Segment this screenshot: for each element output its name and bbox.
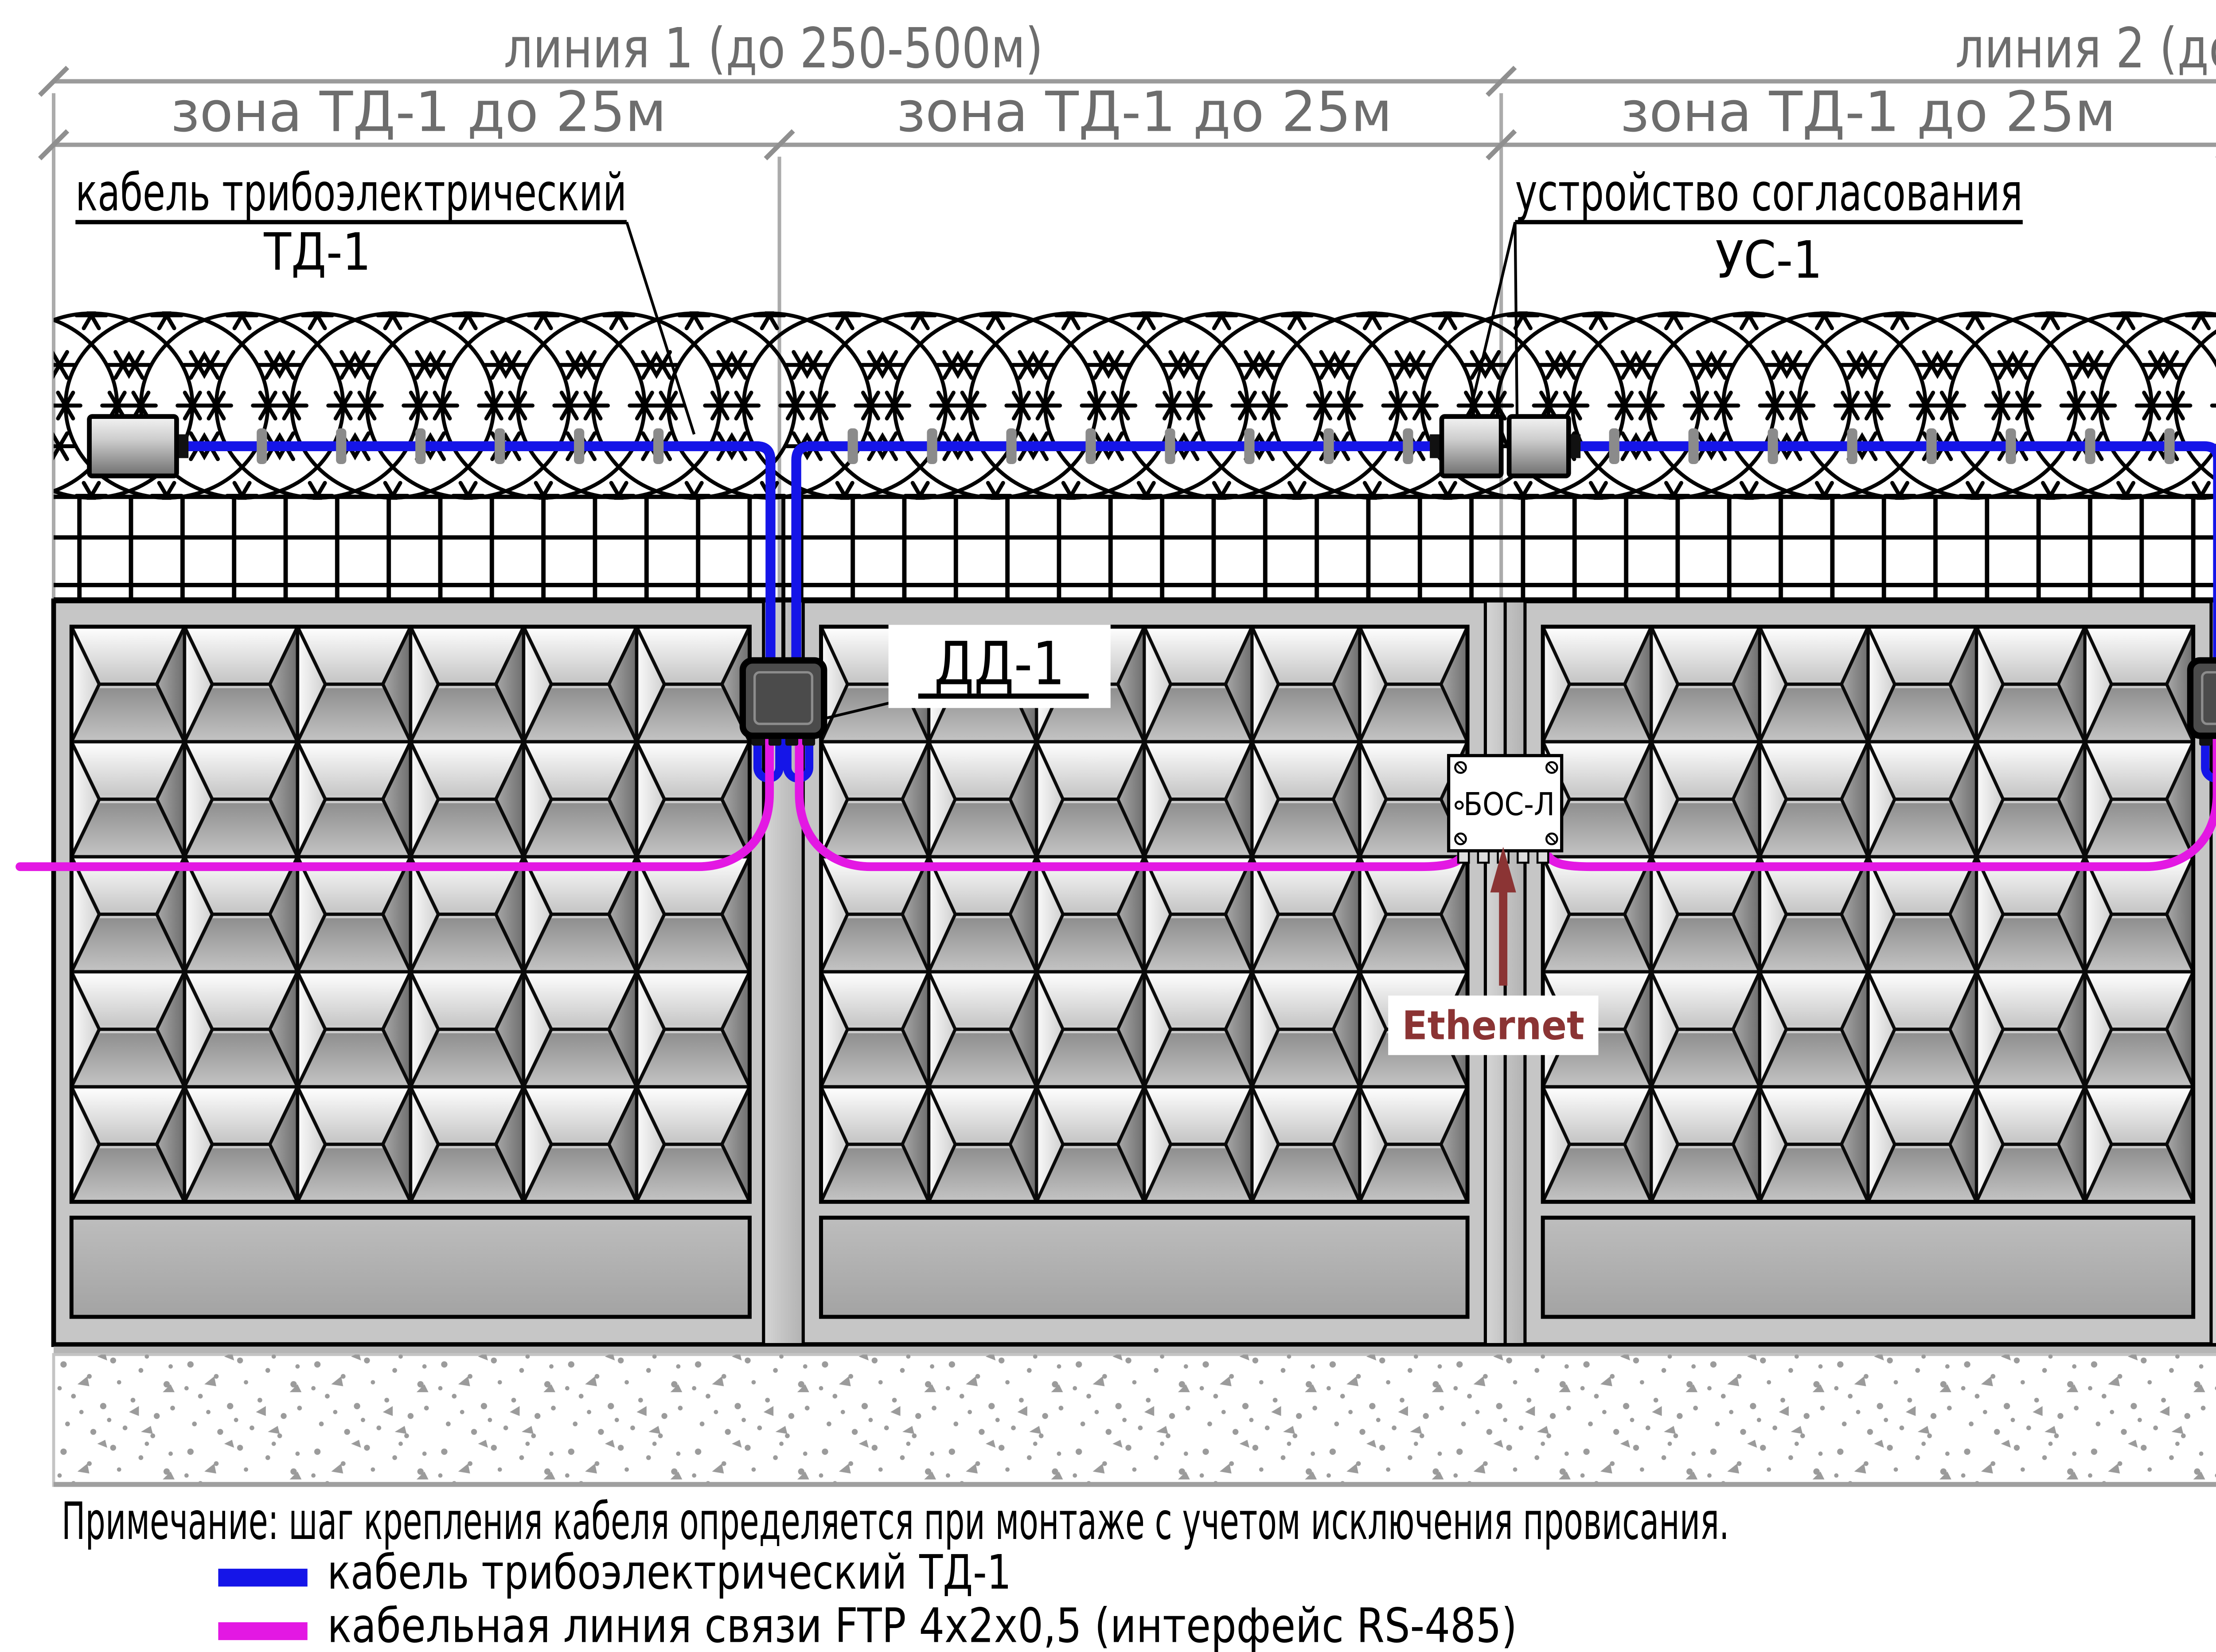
welded-mesh (54, 496, 2216, 601)
cable-clamp-icon (1768, 428, 1778, 464)
cable-clamp-icon (1323, 428, 1334, 464)
cable-clamp-icon (1926, 428, 1936, 464)
fence-panel-base-2 (821, 1218, 1468, 1317)
ground-strip (54, 1355, 2216, 1485)
cable-clamp-icon (257, 428, 267, 464)
razor-coil-band (54, 311, 2216, 500)
dim-zone-2: зона ТД-1 до 25м (897, 79, 1393, 144)
diagram-canvas: линия 1 (до 250-500м) линия 2 (до 250-50… (0, 0, 2216, 1652)
cable-clamp-icon (1609, 428, 1619, 464)
cable-clamp-icon (495, 428, 505, 464)
cable-clamp-icon (1244, 428, 1254, 464)
cable-clamp-icon (927, 428, 937, 464)
cable-clamp-icon (653, 428, 663, 464)
dim-zone-1: зона ТД-1 до 25м (171, 79, 667, 144)
cable-clamp-icon (336, 428, 346, 464)
cable-clamp-icon (1847, 428, 1857, 464)
matching-device-label-2: УС-1 (1715, 230, 1822, 290)
fence-panel-blocks-3 (1543, 627, 2193, 1202)
dim-zone-3: зона ТД-1 до 25м (1620, 79, 2116, 144)
cable-clamp-icon (848, 428, 858, 464)
cable-clamp-icon (2085, 428, 2095, 464)
cable-clamp-icon (1006, 428, 1016, 464)
dim-line-1: линия 1 (до 250-500м) (504, 16, 1043, 81)
legend-swatch-sensor-cable (218, 1569, 307, 1586)
cable-clamp-icon (574, 428, 584, 464)
cable-clamp-icon (1085, 428, 1096, 464)
legend: кабель трибоэлектрический ТД-1 кабельная… (218, 1545, 1517, 1652)
cable-clamp-icon (1689, 428, 1699, 464)
legend-label-sensor-cable: кабель трибоэлектрический ТД-1 (327, 1545, 1011, 1600)
dim-line-2: линия 2 (до 250-500м) (1955, 16, 2216, 81)
concrete-fence (54, 601, 2216, 1355)
cable-clamp-icon (2005, 428, 2016, 464)
matching-device-label-1: устройство согласования (1515, 163, 2023, 223)
cable-left-label-1: кабель трибоэлектрический (75, 163, 627, 223)
cable-clamp-icon (1403, 428, 1413, 464)
cable-left-label-2: ТД-1 (263, 222, 371, 282)
fence-panel-base-3 (1543, 1218, 2193, 1317)
cable-clamp-icon (2164, 428, 2174, 464)
detector-dd1-left (743, 660, 824, 746)
dd1-label-left: ДД-1 (934, 629, 1065, 699)
cable-terminator-left (90, 417, 189, 476)
bos-l-unit: БОС-Л (1449, 756, 1562, 863)
fence-panel-blocks-1 (71, 627, 749, 1202)
ethernet-label: Ethernet (1402, 1003, 1584, 1049)
note-text: Примечание: шаг крепления кабеля определ… (62, 1492, 1729, 1551)
fence-panel-blocks-2 (821, 627, 1468, 1202)
fence-panel-base-1 (71, 1218, 749, 1317)
detector-dd1-right (2190, 660, 2216, 746)
legend-swatch-ftp-line (218, 1622, 307, 1640)
legend-label-ftp-line: кабельная линия связи FTP 4x2x0,5 (интер… (327, 1598, 1517, 1652)
cable-clamp-icon (415, 428, 425, 464)
bos-label: БОС-Л (1463, 786, 1555, 823)
cable-clamp-icon (1165, 428, 1175, 464)
